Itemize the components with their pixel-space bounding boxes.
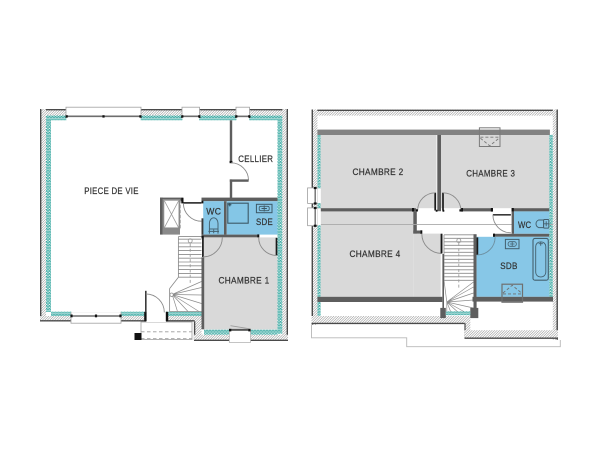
svg-text:WC: WC bbox=[518, 220, 532, 231]
svg-text:CHAMBRE 2: CHAMBRE 2 bbox=[353, 167, 404, 178]
svg-text:CHAMBRE 1: CHAMBRE 1 bbox=[219, 276, 270, 287]
svg-text:WC: WC bbox=[206, 207, 221, 218]
svg-text:PIECE DE VIE: PIECE DE VIE bbox=[84, 186, 139, 197]
svg-text:SDE: SDE bbox=[256, 217, 273, 228]
svg-text:SDB: SDB bbox=[500, 261, 518, 272]
svg-text:CELLIER: CELLIER bbox=[238, 154, 273, 165]
svg-text:CHAMBRE 3: CHAMBRE 3 bbox=[466, 168, 515, 179]
svg-text:CHAMBRE 4: CHAMBRE 4 bbox=[350, 249, 401, 260]
